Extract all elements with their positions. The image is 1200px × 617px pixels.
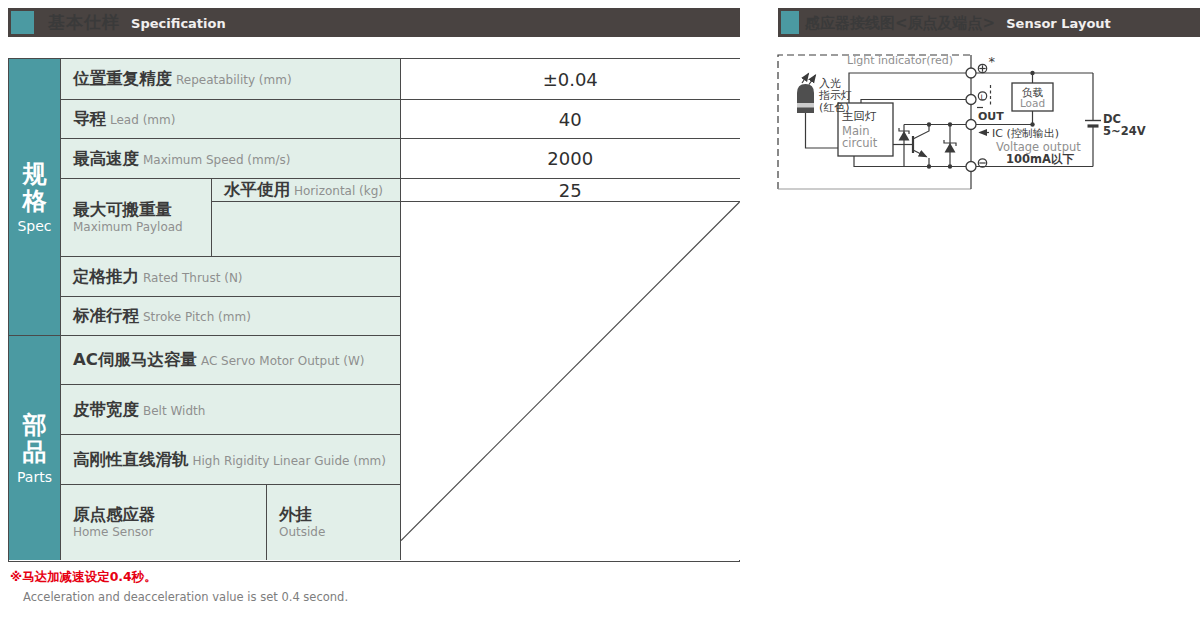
row-label: 位置重复精度Repeatability (mm) [61,59,400,99]
value-text: 40 [559,109,582,130]
value-text: 2000 [547,148,593,169]
row-label-payload: 最大可搬重量 Maximum Payload [61,179,211,256]
footnote-en: Acceleration and deacceleration value is… [23,590,348,604]
terminal-out-pin [966,120,976,130]
group-parts-en: Parts [17,469,52,485]
row-label-home-sensor: 原点感应器 Home Sensor [61,485,266,560]
specification-header-title: 基本仕样 Specification [48,8,226,38]
light-emission-arrow [802,74,809,84]
row-value: 25 [400,179,740,201]
label-en: Stroke Pitch (mm) [143,310,251,324]
label-zh: 水平使用 [224,180,290,199]
led-band [797,103,814,108]
led-wire [806,113,839,148]
diagonal-strikethrough [401,202,740,541]
label-en: Lead (mm) [110,113,175,127]
group-header-spec: 规 格 Spec [9,59,61,335]
label-en: Maximum Payload [73,220,211,235]
group-spec-char1: 规 [23,161,47,188]
sensor-wiring-diagram: Light indicator(red) 入光 指示灯 (红色) 主回灯 Mai… [775,50,1200,202]
row-label: 高刚性直线滑轨High Rigidity Linear Guide (mm) [61,435,400,484]
label-zh: 最高速度 [73,149,139,168]
label-zh: 位置重复精度 [73,69,172,88]
label-zh: 外挂 [279,505,400,525]
row-value: ±0.04 [400,59,740,99]
junction-dot [927,122,931,126]
specification-title-zh: 基本仕样 [48,12,120,32]
specification-header-bar: 基本仕样 Specification [8,8,740,37]
junction-dot [1030,71,1034,75]
group-header-parts: 部 品 Parts [9,335,61,560]
terminal-plus-pin [966,68,976,78]
label-en: Repeatability (mm) [176,73,292,87]
row-label: 最高速度Maximum Speed (mm/s) [61,139,400,178]
teal-square-icon [11,11,34,34]
teal-square-icon [781,11,799,34]
wiring-diagram-svg: Light indicator(red) 入光 指示灯 (红色) 主回灯 Mai… [775,50,1200,202]
value-text: ±0.04 [543,69,598,90]
row-value-empty-diagonal [400,202,740,541]
row-label: 导程Lead (mm) [61,100,400,138]
table-row-lead: 导程Lead (mm) 40 [61,99,740,138]
wire-minus-rail [854,156,971,167]
ic-output-label: IC (控制输出) [992,127,1059,140]
junction-dot [927,164,931,168]
label-en: Outside [279,525,400,540]
junction-dot [948,122,952,126]
label-zh: 原点感应器 [73,505,266,525]
row-label: AC伺服马达容量AC Servo Motor Output (W) [61,336,400,384]
label-en: Belt Width [143,404,205,418]
current-limit-label: 100mA以下 [1006,152,1074,166]
table-row-repeatability: 位置重复精度Repeatability (mm) ±0.04 [61,59,740,99]
junction-dot [948,164,952,168]
label-zh: 标准行程 [73,306,139,325]
out-terminal-label: OUT [978,110,1004,123]
terminal-l-pin [966,95,976,105]
zener1-triangle [899,131,910,141]
sensor-layout-header-title: 感应器接线图<原点及端点> Sensor Layout [805,8,1111,38]
sensor-layout-header-bar: 感应器接线图<原点及端点> Sensor Layout [778,8,1200,37]
row-label: 定格推力Rated Thrust (N) [61,257,400,296]
label-en: Home Sensor [73,525,266,540]
sensor-layout-title-zh: 感应器接线图<原点及端点> [805,14,995,32]
light-emission-arrow [809,75,816,85]
transistor-emitter [913,150,927,157]
label-zh: 皮带宽度 [73,400,139,419]
sub-label-outside: 外挂 Outside [266,485,400,560]
group-parts-char2: 品 [23,439,47,466]
wire-plus [849,73,971,103]
spec-table: 规 格 Spec 部 品 Parts 位置重复精度Repeatability (… [8,58,740,562]
value-text: 25 [559,180,582,201]
label-zh: 定格推力 [73,267,139,286]
spec-table-rows: 位置重复精度Repeatability (mm) ±0.04 导程Lead (m… [61,59,740,560]
label-zh: 导程 [73,109,106,128]
group-spec-en: Spec [17,218,51,234]
group-spec-char2: 格 [23,188,47,215]
label-zh: 最大可搬重量 [73,200,211,220]
load-label-en: Load [1020,97,1045,109]
row-value: 40 [400,100,740,138]
sub-label: 水平使用Horizontal (kg) [211,179,400,201]
group-parts-char1: 部 [23,412,47,439]
led-indicator-icon [797,84,814,113]
label-zh: 高刚性直线滑轨 [73,450,189,469]
table-row-max-payload: 最大可搬重量 Maximum Payload 水平使用Horizontal (k… [61,178,740,256]
label-en: AC Servo Motor Output (W) [201,354,365,368]
zener2-triangle [945,143,956,153]
asterisk-mark: * [989,54,996,69]
label-en: Rated Thrust (N) [143,271,243,285]
terminal-minus-pin [966,162,976,172]
load-label-zh: 负载 [1022,86,1044,98]
row-label: 皮带宽度Belt Width [61,385,400,434]
dc-voltage-label: 5~24V [1103,124,1146,138]
label-en: High Rigidity Linear Guide (mm) [193,454,387,468]
row-label: 标准行程Stroke Pitch (mm) [61,297,400,335]
table-row-max-speed: 最高速度Maximum Speed (mm/s) 2000 [61,138,740,178]
transistor-collector [913,125,929,140]
footnote-zh: ※马达加减速设定0.4秒。 [10,569,157,586]
specification-title-en: Specification [131,16,226,31]
main-circuit-label-en2: circuit [842,136,878,150]
label-en: Maximum Speed (mm/s) [143,153,290,167]
label-en: Horizontal (kg) [294,184,383,198]
row-value: 2000 [400,139,740,178]
subrow-horizontal: 水平使用Horizontal (kg) 25 [211,179,740,201]
payload-subrows: 水平使用Horizontal (kg) 25 垂直使用Vertical (kg) [211,179,740,256]
light-indicator-label: Light indicator(red) [847,54,953,67]
label-zh: AC伺服马达容量 [73,350,197,369]
spec-sheet-page: { "headers": { "left": { "zh": "基本仕样", "… [0,0,1200,617]
sensor-layout-title-en: Sensor Layout [1006,16,1111,31]
main-circuit-label-zh: 主回灯 [842,109,877,123]
